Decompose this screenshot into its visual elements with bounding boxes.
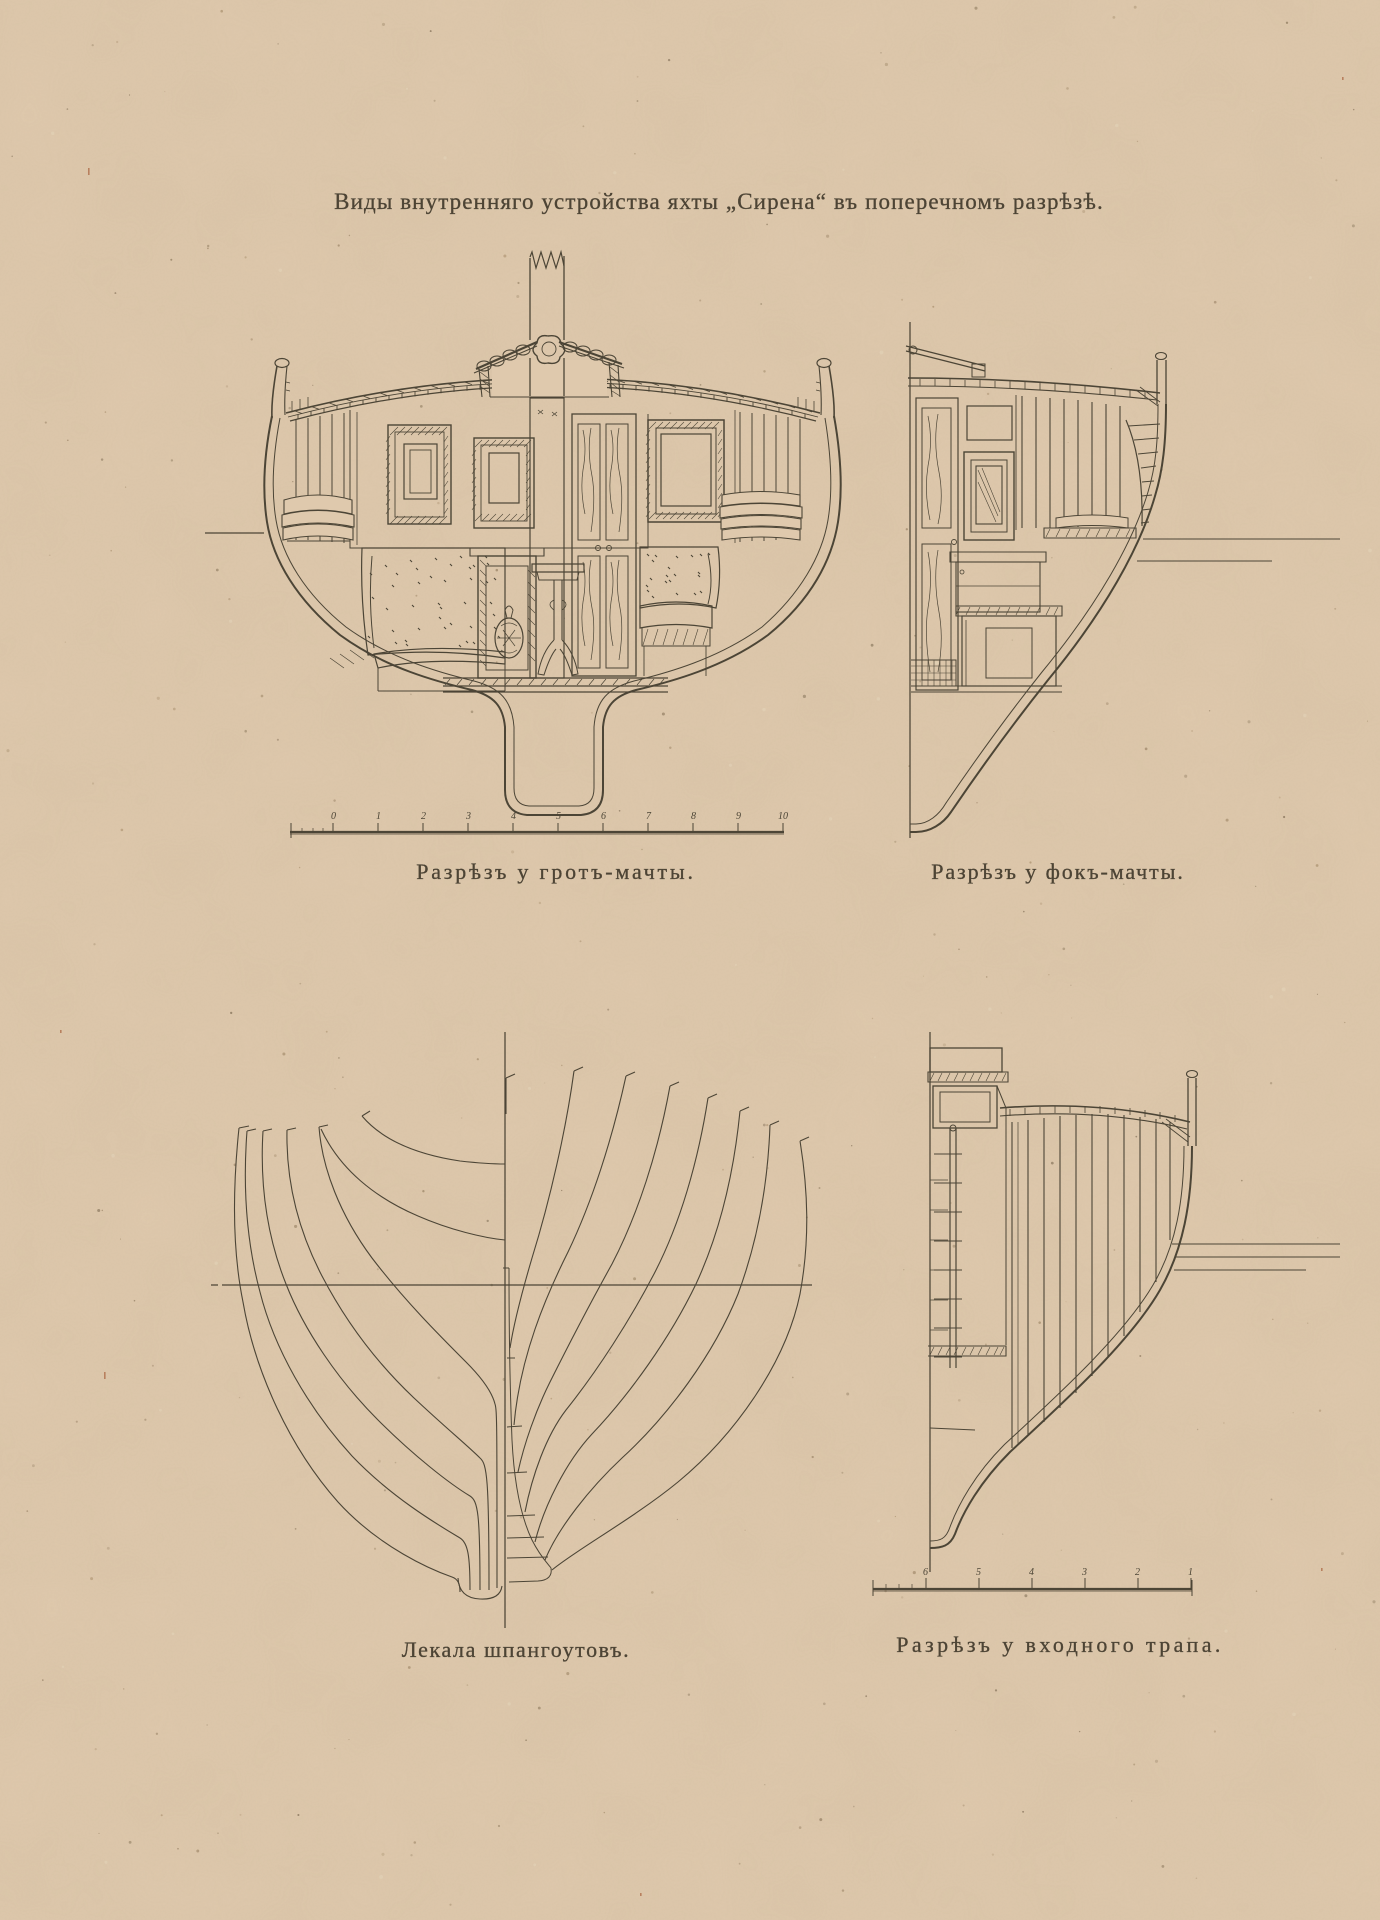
svg-text:6: 6 [601,811,606,822]
svg-text:Лекала шпангоутовъ.: Лекала шпангоутовъ. [402,1637,630,1662]
svg-text:5: 5 [976,1567,981,1578]
svg-text:9: 9 [736,811,741,822]
svg-text:1: 1 [376,811,381,822]
svg-text:4: 4 [511,811,516,822]
svg-text:Разрѣзъ у гротъ-мачты.: Разрѣзъ у гротъ-мачты. [416,859,696,884]
svg-text:Виды внутренняго устройства ях: Виды внутренняго устройства яхты „Сирена… [334,189,1104,214]
svg-text:2: 2 [1135,1567,1140,1578]
svg-text:Разрѣзъ у входного трапа.: Разрѣзъ у входного трапа. [896,1632,1224,1657]
svg-text:0: 0 [331,811,336,822]
svg-text:2: 2 [421,811,426,822]
svg-text:8: 8 [691,811,696,822]
svg-text:3: 3 [1081,1567,1087,1578]
svg-text:3: 3 [465,811,471,822]
svg-text:10: 10 [778,811,788,822]
svg-text:4: 4 [1029,1567,1034,1578]
svg-text:1: 1 [1188,1567,1193,1578]
svg-text:Разрѣзъ у фокъ-мачты.: Разрѣзъ у фокъ-мачты. [931,859,1185,884]
svg-text:5: 5 [556,811,561,822]
svg-text:6: 6 [923,1567,928,1578]
